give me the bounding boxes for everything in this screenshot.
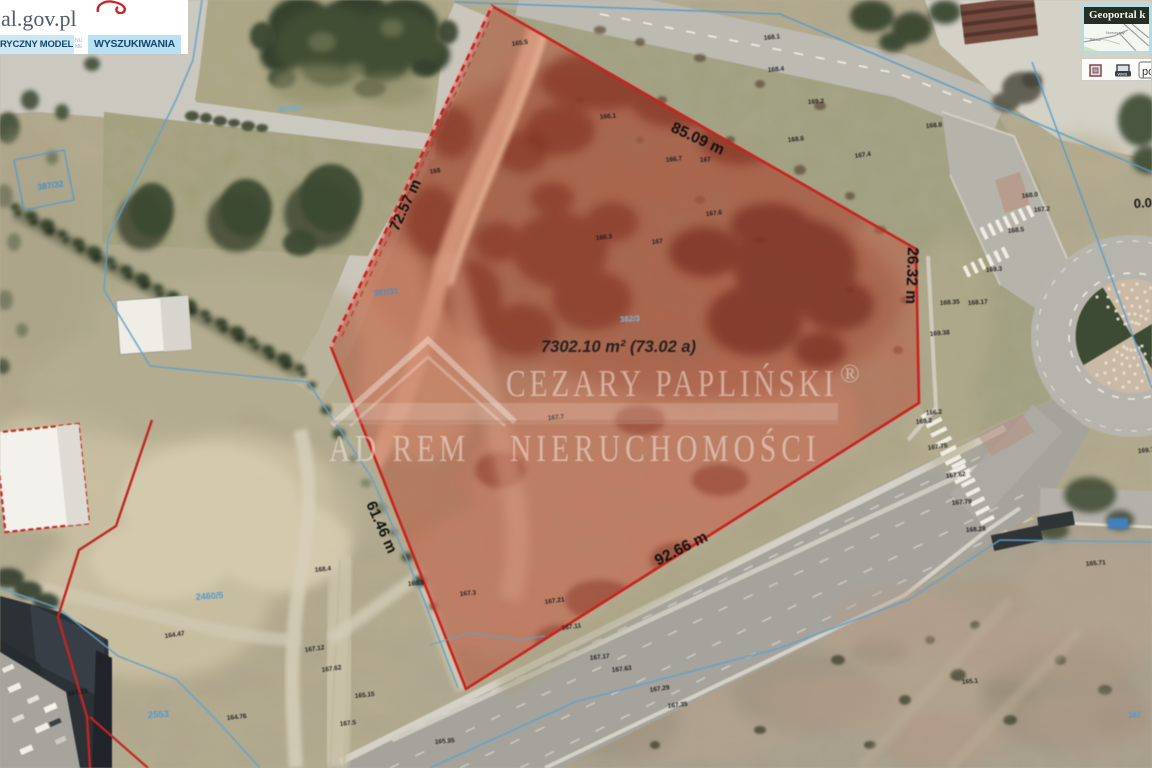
svg-text:2553: 2553 [148, 709, 170, 721]
svg-text:169.71: 169.71 [1138, 446, 1152, 455]
svg-text:168.4: 168.4 [768, 66, 785, 74]
svg-text:WMS: WMS [1118, 72, 1128, 77]
svg-text:169.2: 169.2 [808, 98, 825, 106]
svg-text:168.17: 168.17 [968, 299, 989, 307]
svg-text:2460/5: 2460/5 [195, 590, 223, 602]
svg-text:7302.10 m² (73.02 a): 7302.10 m² (73.02 a) [541, 338, 697, 356]
svg-text:387/30: 387/30 [278, 103, 302, 114]
svg-text:382/3: 382/3 [620, 314, 641, 324]
svg-text:168.35: 168.35 [940, 299, 961, 307]
svg-text:167: 167 [652, 238, 664, 246]
svg-text:167: 167 [700, 156, 712, 164]
svg-text:387: 387 [1128, 710, 1142, 720]
svg-text:169.3: 169.3 [986, 266, 1003, 274]
svg-text:168.3: 168.3 [408, 580, 425, 588]
svg-text:®: ® [840, 359, 860, 388]
svg-text:0.0: 0.0 [1133, 195, 1152, 211]
svg-text:166.1: 166.1 [600, 113, 617, 121]
svg-text:168.28: 168.28 [966, 526, 987, 534]
svg-text:167.2: 167.2 [1034, 206, 1051, 214]
svg-text:NIERUCHOMOŚCI: NIERUCHOMOŚCI [510, 427, 821, 470]
svg-text:pd: pd [1142, 66, 1151, 78]
svg-text:Bielsk: Bielsk [1090, 37, 1101, 42]
svg-text:Nowosady: Nowosady [1106, 30, 1125, 35]
svg-text:166.2: 166.2 [926, 409, 943, 417]
svg-text:168.8: 168.8 [926, 122, 943, 130]
svg-text:165.1: 165.1 [962, 678, 979, 686]
svg-text:AD REM: AD REM [329, 428, 470, 469]
svg-text:167.3: 167.3 [460, 590, 477, 598]
svg-text:26.32 m: 26.32 m [902, 247, 921, 304]
svg-text:CEZARY PAPLIŃSKI: CEZARY PAPLIŃSKI [506, 363, 837, 404]
